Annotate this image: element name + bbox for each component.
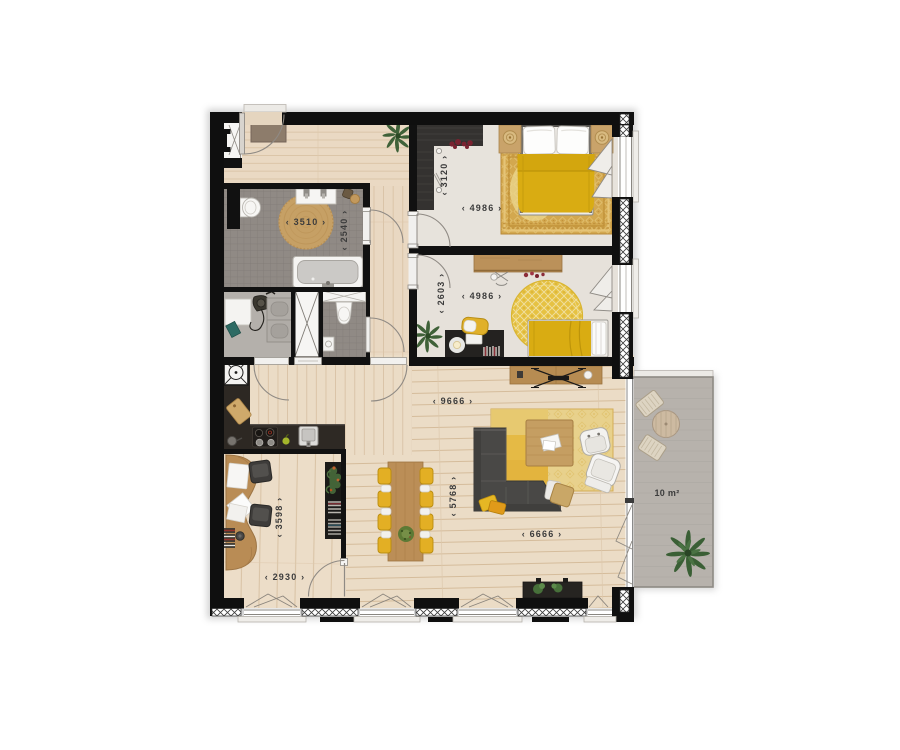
svg-text:‹ 4986 ›: ‹ 4986 › bbox=[462, 291, 503, 301]
svg-text:‹ 2930 ›: ‹ 2930 › bbox=[265, 572, 306, 582]
svg-text:‹ 2603 ›: ‹ 2603 › bbox=[436, 273, 446, 314]
svg-text:‹ 5768 ›: ‹ 5768 › bbox=[448, 476, 458, 517]
svg-text:‹ 9666 ›: ‹ 9666 › bbox=[433, 396, 474, 406]
svg-text:10 m²: 10 m² bbox=[654, 488, 679, 498]
svg-text:‹ 6666 ›: ‹ 6666 › bbox=[522, 529, 563, 539]
svg-text:‹ 4986 ›: ‹ 4986 › bbox=[462, 203, 503, 213]
svg-text:‹ 3120 ›: ‹ 3120 › bbox=[439, 155, 449, 196]
svg-text:‹ 3510 ›: ‹ 3510 › bbox=[286, 217, 327, 227]
svg-text:‹ 3598 ›: ‹ 3598 › bbox=[274, 497, 284, 538]
svg-text:‹ 2540 ›: ‹ 2540 › bbox=[339, 210, 349, 251]
